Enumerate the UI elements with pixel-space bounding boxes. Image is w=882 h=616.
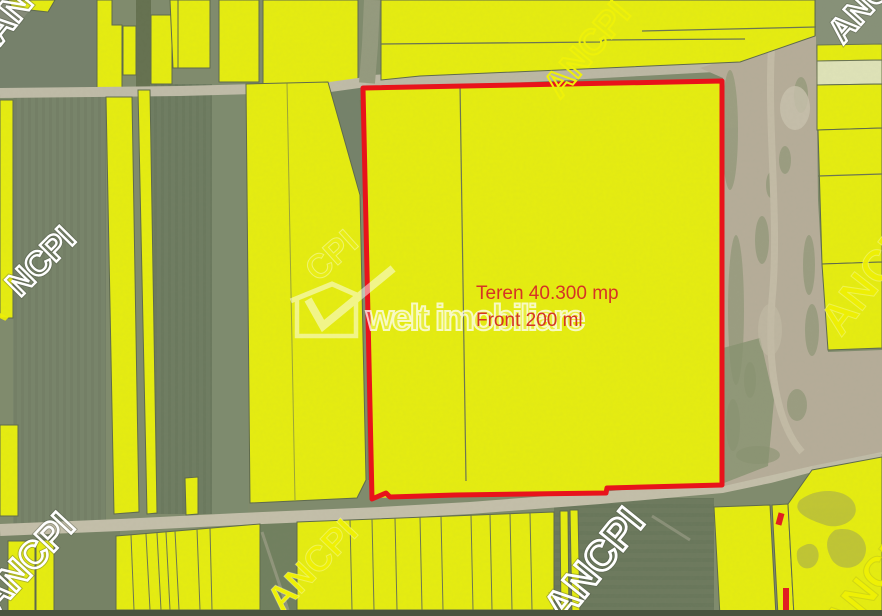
- svg-text:Teren 40.300 mp: Teren 40.300 mp: [476, 283, 619, 304]
- svg-text:Front 200 ml: Front 200 ml: [476, 310, 583, 331]
